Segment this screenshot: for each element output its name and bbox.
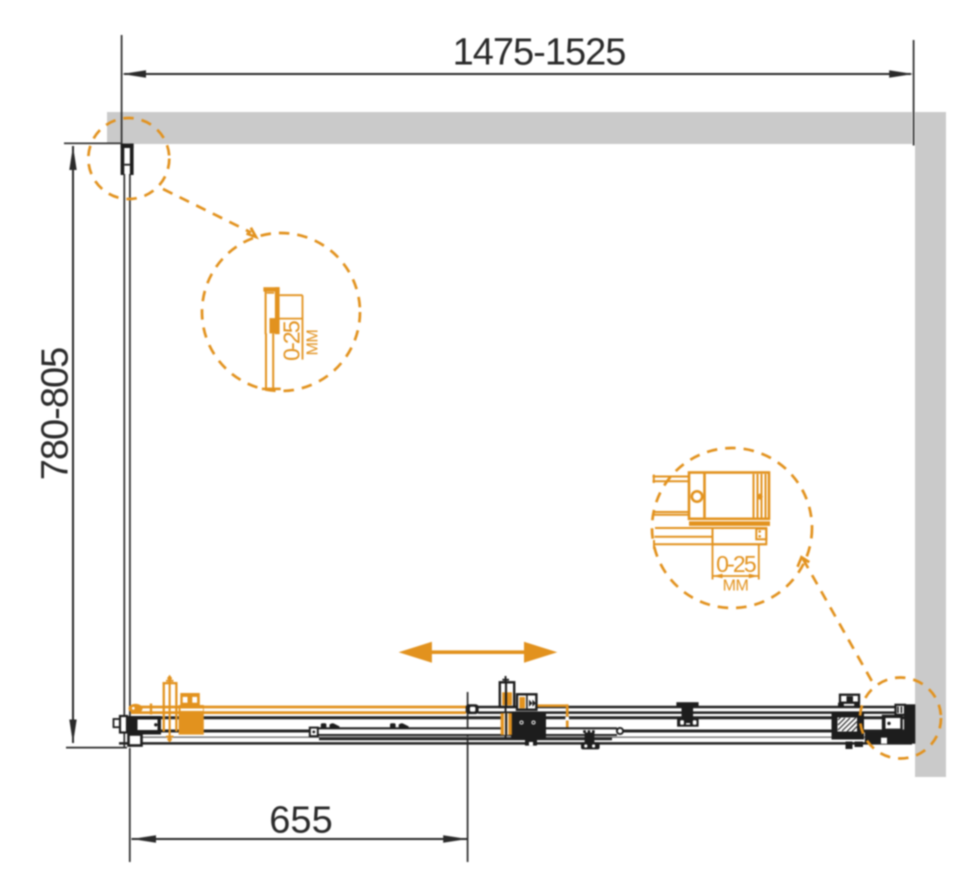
- svg-text:MM: MM: [305, 330, 322, 356]
- svg-text:780-805: 780-805: [35, 348, 77, 480]
- svg-text:1475-1525: 1475-1525: [453, 32, 626, 74]
- svg-text:MM: MM: [723, 578, 749, 595]
- svg-text:655: 655: [269, 800, 332, 842]
- svg-text:0-25: 0-25: [716, 551, 756, 577]
- svg-text:0-25: 0-25: [279, 321, 305, 361]
